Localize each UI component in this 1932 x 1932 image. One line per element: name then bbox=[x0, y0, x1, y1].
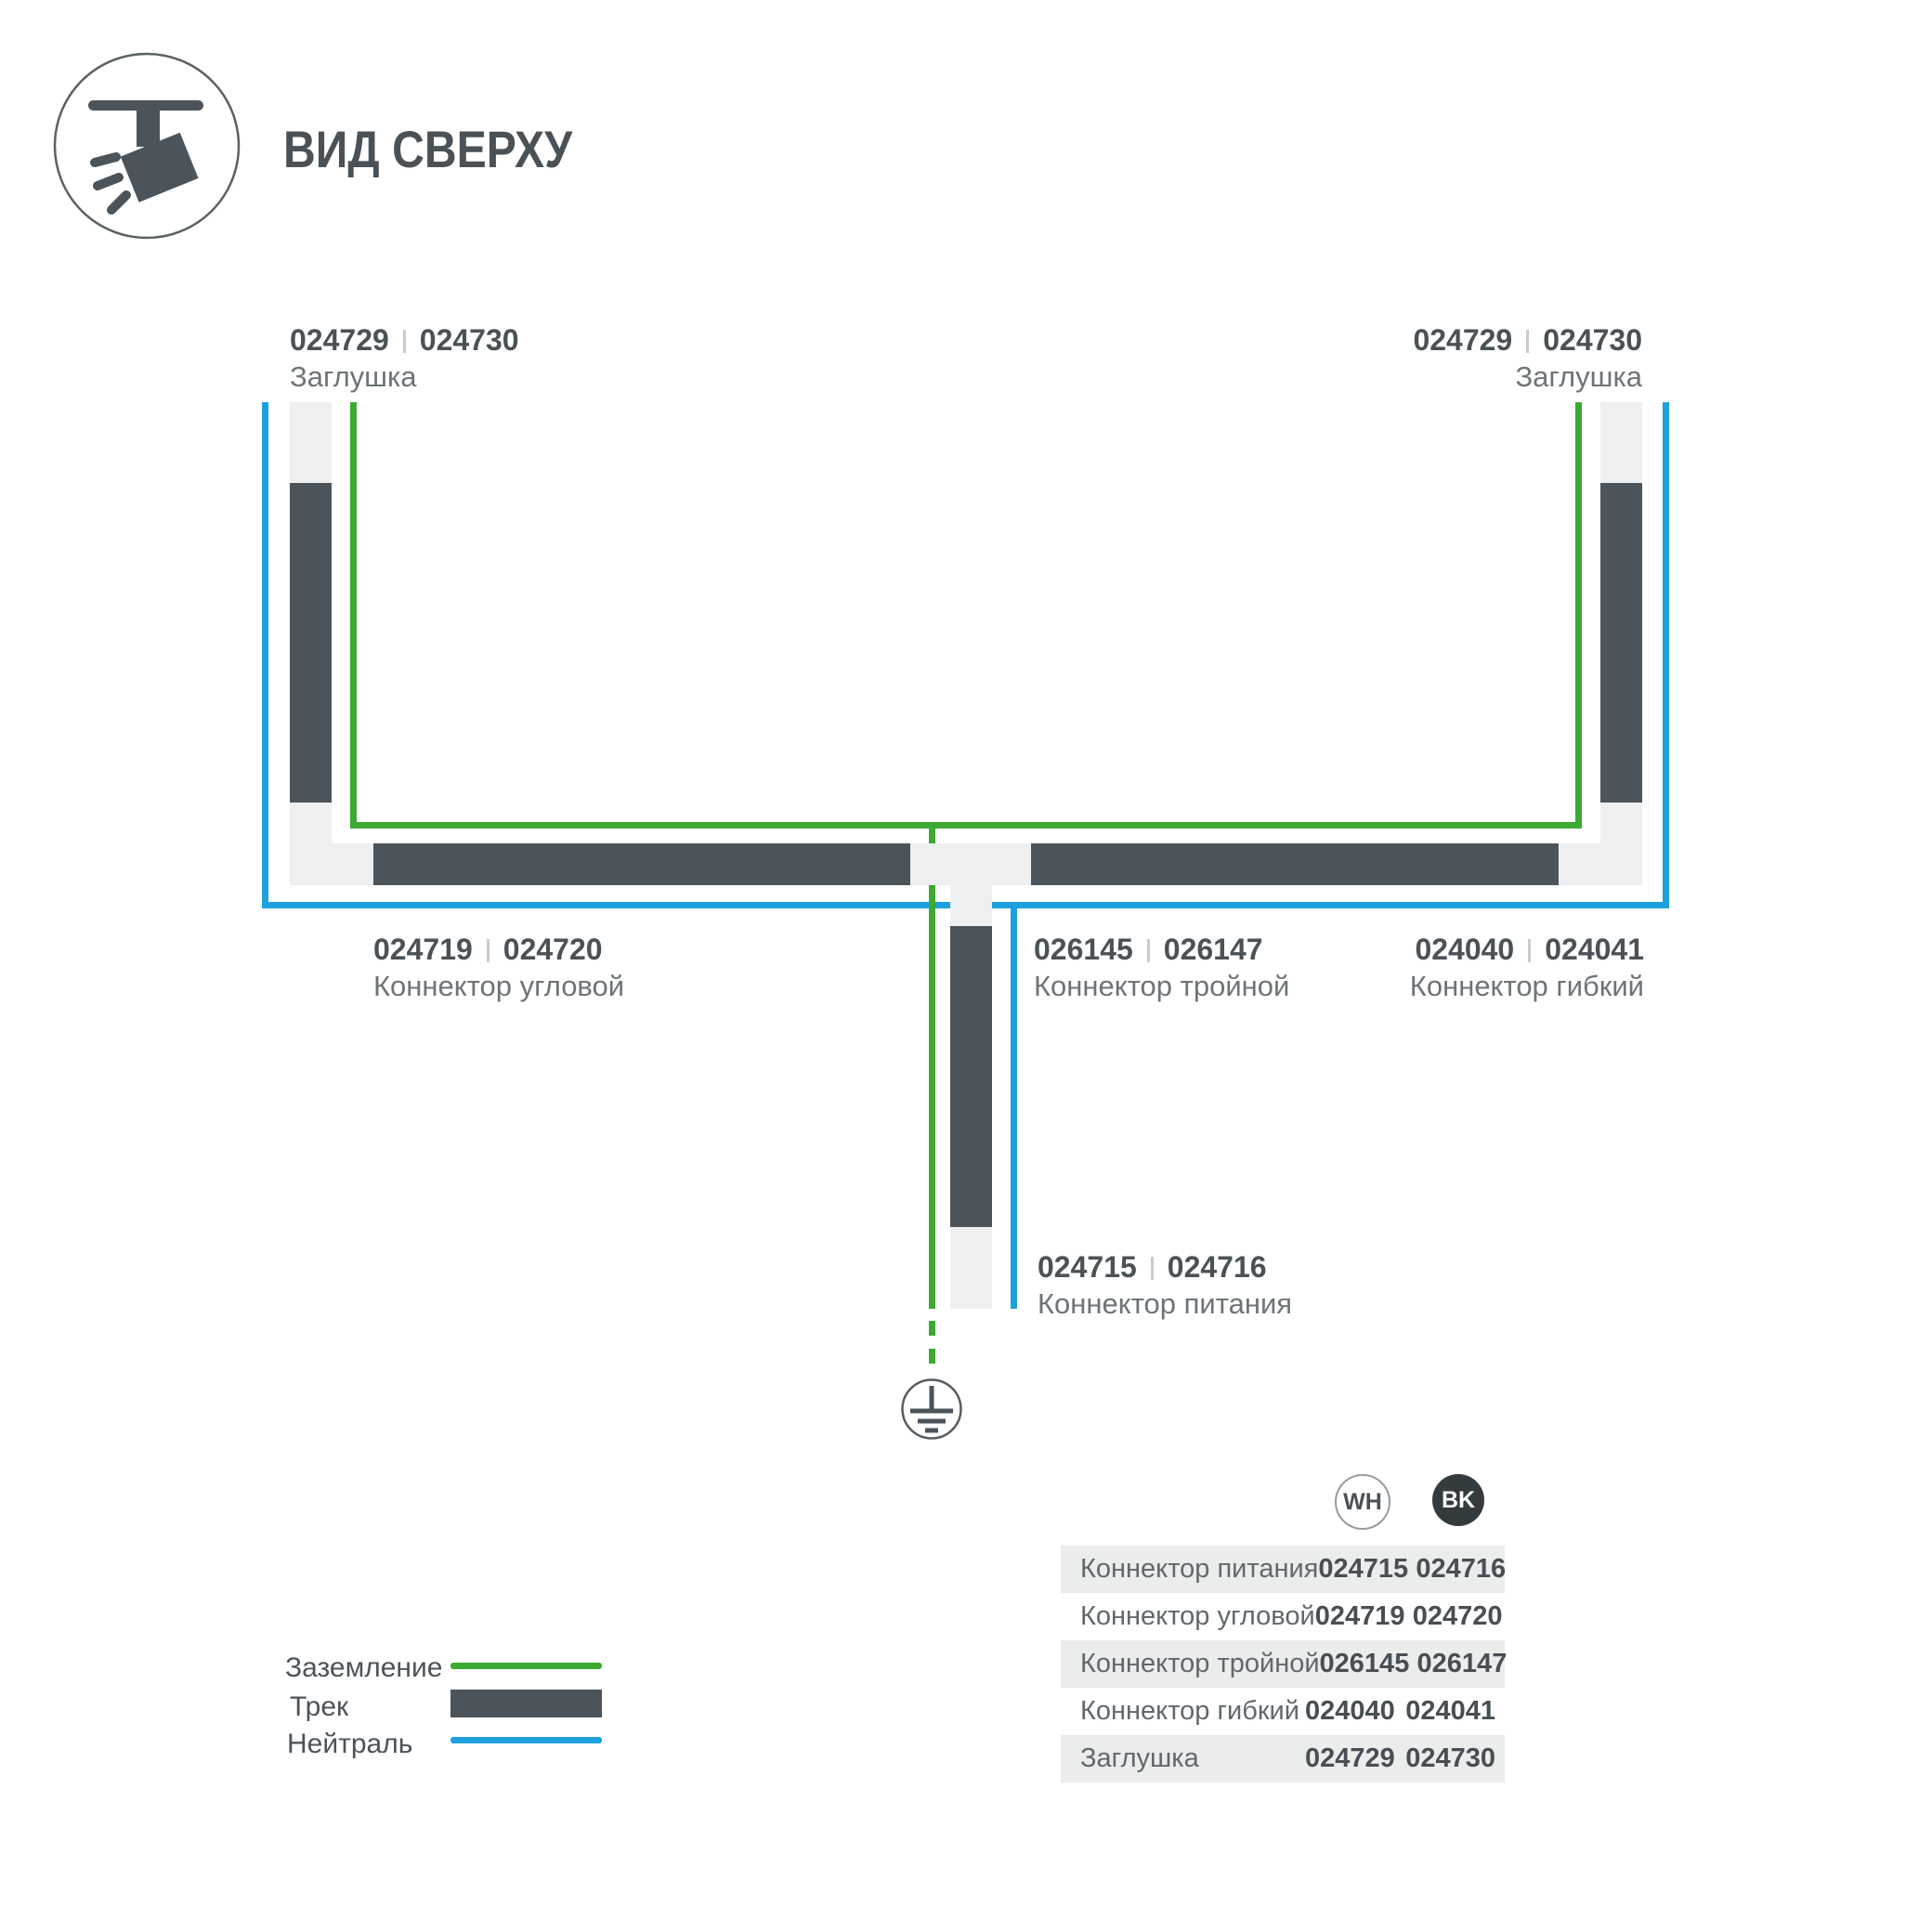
track-segment-right-vertical bbox=[1600, 483, 1642, 803]
row-bk-code: 024720 bbox=[1413, 1601, 1512, 1632]
code-separator bbox=[403, 330, 406, 353]
label-end-cap-left: 024729024730 Заглушка bbox=[290, 323, 519, 393]
end-cap-left bbox=[290, 402, 332, 483]
triple-connector-body bbox=[910, 843, 1031, 885]
ground-line-feed-vertical bbox=[929, 826, 935, 1309]
neutral-blue-line-swatch bbox=[450, 1737, 602, 1743]
row-bk-code: 026147 bbox=[1417, 1649, 1517, 1679]
table-row: Коннектор тройной 026145 026147 bbox=[1061, 1640, 1505, 1688]
track-segment-top-right bbox=[1031, 843, 1559, 885]
row-bk-code: 024716 bbox=[1416, 1554, 1515, 1585]
code-separator bbox=[1151, 1257, 1154, 1280]
row-name: Коннектор питания bbox=[1061, 1554, 1318, 1585]
label-triple-connector: 026145026147 Коннектор тройной bbox=[1034, 933, 1289, 1002]
legend-label-neutral: Нейтраль bbox=[287, 1729, 412, 1760]
label-name: Заглушка bbox=[1413, 361, 1642, 393]
row-wh-code: 024715 bbox=[1318, 1554, 1416, 1585]
label-codes: 024040024041 bbox=[1410, 933, 1644, 966]
track-segment-top-left bbox=[373, 843, 910, 885]
label-name: Коннектор угловой bbox=[373, 971, 624, 1002]
neutral-line-feed-vertical bbox=[1011, 906, 1017, 1309]
row-bk-code: 024730 bbox=[1403, 1743, 1505, 1774]
label-codes: 024729024730 bbox=[1413, 323, 1642, 357]
track-dark-bar-swatch bbox=[450, 1690, 602, 1717]
row-name: Коннектор гибкий bbox=[1061, 1696, 1305, 1727]
ground-line-horizontal bbox=[350, 822, 1582, 829]
neutral-line-left-vertical bbox=[262, 402, 268, 908]
label-codes: 024729024730 bbox=[290, 323, 519, 357]
end-cap-right bbox=[1600, 402, 1642, 483]
legend-label-track: Трек bbox=[290, 1691, 348, 1723]
code-separator bbox=[1147, 939, 1150, 962]
ground-line-left-vertical bbox=[350, 402, 357, 826]
label-corner-connector: 024719024720 Коннектор угловой bbox=[373, 933, 624, 1002]
row-wh-code: 026145 bbox=[1320, 1649, 1417, 1679]
table-row: Коннектор гибкий 024040 024041 bbox=[1061, 1688, 1505, 1735]
row-name: Коннектор тройной bbox=[1061, 1649, 1320, 1679]
corner-connector-right-arm-h bbox=[1559, 843, 1642, 885]
power-connector-body bbox=[950, 1227, 992, 1309]
table-row: Коннектор угловой 024719 024720 bbox=[1061, 1593, 1505, 1640]
label-codes: 024715024716 bbox=[1038, 1250, 1292, 1284]
label-codes: 024719024720 bbox=[373, 933, 624, 966]
label-name: Заглушка bbox=[290, 361, 519, 393]
corner-connector-left-arm-h bbox=[290, 843, 373, 885]
ground-line-right-vertical bbox=[1575, 402, 1582, 826]
label-power-connector: 024715024716 Коннектор питания bbox=[1038, 1250, 1292, 1320]
ground-green-line-swatch bbox=[450, 1663, 602, 1669]
neutral-line-right-vertical bbox=[1663, 402, 1669, 908]
table-row: Коннектор питания 024715 024716 bbox=[1061, 1546, 1505, 1593]
row-name: Заглушка bbox=[1061, 1743, 1305, 1774]
row-wh-code: 024729 bbox=[1305, 1743, 1403, 1774]
row-wh-code: 024719 bbox=[1315, 1601, 1413, 1632]
color-badge-white: WH bbox=[1335, 1474, 1390, 1530]
label-flex-connector: 024040024041 Коннектор гибкий bbox=[1410, 933, 1644, 1002]
code-separator bbox=[1526, 330, 1529, 353]
article-table: Коннектор питания 024715 024716 Коннекто… bbox=[1061, 1546, 1505, 1782]
code-separator bbox=[1528, 939, 1531, 962]
label-codes: 026145026147 bbox=[1034, 933, 1289, 966]
label-name: Коннектор тройной bbox=[1034, 971, 1289, 1002]
track-segment-middle-vertical bbox=[950, 926, 992, 1227]
ceiling-track-spotlight-icon bbox=[52, 51, 241, 245]
table-row: Заглушка 024729 024730 bbox=[1061, 1735, 1505, 1782]
row-bk-code: 024041 bbox=[1403, 1696, 1505, 1727]
label-name: Коннектор питания bbox=[1038, 1288, 1292, 1320]
label-end-cap-right: 024729024730 Заглушка bbox=[1413, 323, 1642, 393]
row-name: Коннектор угловой bbox=[1061, 1601, 1315, 1632]
ground-line-dashed-tail bbox=[929, 1321, 935, 1365]
legend-label-ground: Заземление bbox=[285, 1652, 442, 1684]
triple-connector-leg bbox=[950, 885, 992, 926]
code-separator bbox=[487, 939, 490, 962]
track-segment-left-vertical bbox=[290, 483, 332, 803]
row-wh-code: 024040 bbox=[1305, 1696, 1403, 1727]
label-name: Коннектор гибкий bbox=[1410, 971, 1644, 1002]
color-badge-black: BK bbox=[1432, 1474, 1484, 1526]
earth-ground-icon bbox=[899, 1377, 964, 1446]
page-title: ВИД СВЕРХУ bbox=[283, 119, 572, 179]
page: ВИД СВЕРХУ bbox=[0, 0, 1932, 1932]
